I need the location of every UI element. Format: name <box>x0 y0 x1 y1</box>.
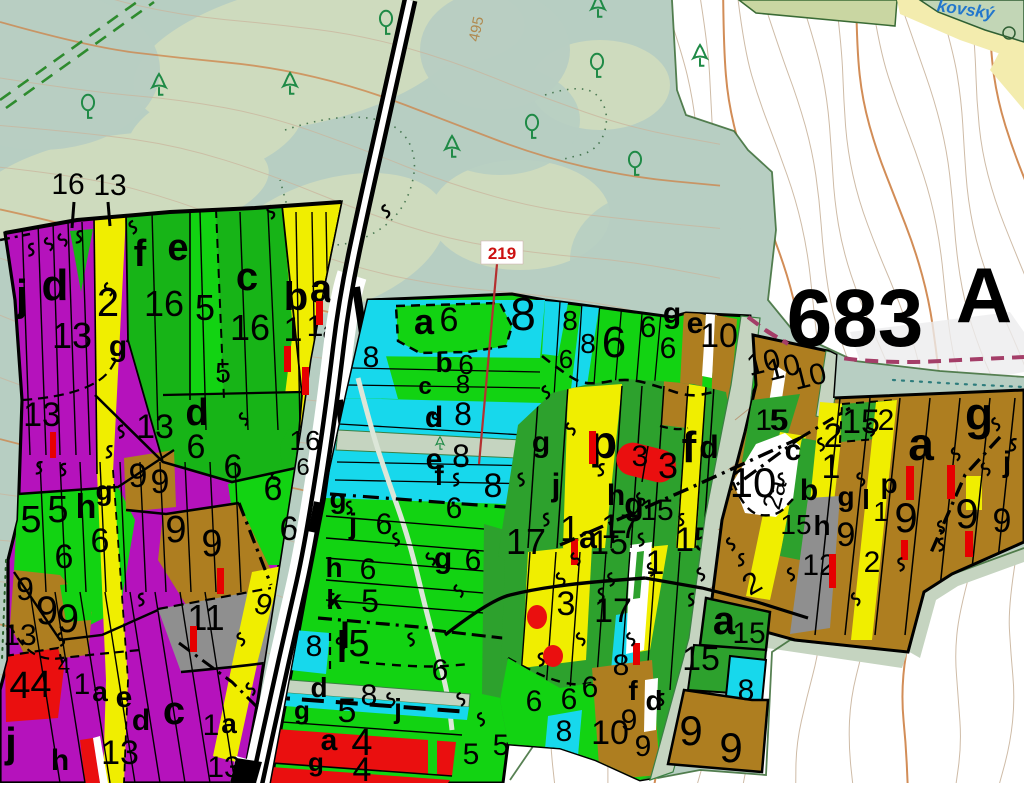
svg-text:g: g <box>532 426 550 459</box>
svg-text:c: c <box>163 689 185 733</box>
svg-text:6: 6 <box>465 544 482 577</box>
svg-text:17: 17 <box>506 521 546 562</box>
svg-text:9: 9 <box>837 516 856 554</box>
svg-text:8: 8 <box>306 630 323 663</box>
svg-text:6: 6 <box>640 311 657 344</box>
svg-text:4: 4 <box>353 751 372 783</box>
svg-text:6: 6 <box>440 301 459 339</box>
svg-text:b: b <box>800 474 818 507</box>
svg-text:16: 16 <box>230 307 270 348</box>
svg-text:1: 1 <box>646 544 665 582</box>
svg-text:a: a <box>221 708 237 739</box>
svg-text:9: 9 <box>993 502 1012 540</box>
svg-text:17: 17 <box>594 592 632 630</box>
svg-text:6: 6 <box>55 538 74 576</box>
svg-text:h: h <box>76 488 97 526</box>
svg-text:g: g <box>965 388 993 440</box>
svg-text:9: 9 <box>679 707 702 754</box>
svg-text:8: 8 <box>452 438 470 474</box>
svg-text:15: 15 <box>842 403 880 441</box>
svg-text:6: 6 <box>582 671 599 704</box>
svg-text:5: 5 <box>348 623 369 665</box>
svg-text:a: a <box>92 676 108 707</box>
svg-text:5: 5 <box>361 583 379 619</box>
svg-text:g: g <box>837 481 854 512</box>
svg-text:5: 5 <box>47 489 68 531</box>
svg-text:d: d <box>42 261 69 310</box>
svg-text:6: 6 <box>660 332 677 365</box>
svg-text:g: g <box>95 475 112 506</box>
svg-text:9: 9 <box>719 724 742 771</box>
svg-text:g: g <box>109 330 127 363</box>
svg-text:10: 10 <box>700 317 738 355</box>
svg-text:8: 8 <box>363 341 380 374</box>
svg-text:16: 16 <box>51 168 84 201</box>
svg-text:9: 9 <box>201 523 222 565</box>
svg-text:3: 3 <box>632 440 649 473</box>
svg-text:k: k <box>326 584 342 615</box>
svg-text:9: 9 <box>165 509 186 551</box>
svg-text:g: g <box>308 747 324 777</box>
svg-text:6: 6 <box>446 492 463 525</box>
svg-text:l: l <box>862 484 870 515</box>
svg-text:e: e <box>116 681 133 714</box>
svg-text:16: 16 <box>289 425 320 456</box>
svg-text:9: 9 <box>151 463 170 501</box>
svg-text:A: A <box>956 251 1012 339</box>
svg-text:6: 6 <box>526 685 543 718</box>
svg-text:e: e <box>167 227 188 269</box>
svg-text:6: 6 <box>561 683 578 716</box>
svg-text:h: h <box>813 510 830 541</box>
svg-text:8: 8 <box>484 467 503 505</box>
svg-text:g: g <box>663 297 681 330</box>
svg-text:g: g <box>329 483 346 514</box>
svg-text:5: 5 <box>215 357 231 388</box>
svg-text:9: 9 <box>129 457 148 495</box>
svg-text:8: 8 <box>613 649 630 682</box>
svg-text:4: 4 <box>9 665 30 707</box>
svg-text:f: f <box>434 460 444 491</box>
svg-text:9: 9 <box>894 494 917 541</box>
svg-text:9: 9 <box>955 490 978 537</box>
svg-text:8: 8 <box>361 679 378 712</box>
svg-text:13: 13 <box>101 734 139 772</box>
svg-text:a: a <box>908 418 934 470</box>
svg-text:6: 6 <box>224 448 243 486</box>
svg-text:683: 683 <box>787 273 924 364</box>
svg-text:6: 6 <box>602 318 626 367</box>
svg-text:1: 1 <box>74 668 91 701</box>
svg-text:d: d <box>132 704 150 737</box>
svg-text:c: c <box>418 373 431 400</box>
svg-text:h: h <box>325 552 342 583</box>
svg-text:13: 13 <box>3 619 36 652</box>
svg-text:8: 8 <box>510 288 536 340</box>
svg-text:5: 5 <box>463 738 480 771</box>
svg-text:9: 9 <box>16 571 34 607</box>
svg-text:a: a <box>414 301 435 342</box>
svg-text:13: 13 <box>23 396 61 434</box>
svg-text:2: 2 <box>878 404 895 437</box>
svg-text:4: 4 <box>58 653 70 678</box>
svg-text:8: 8 <box>556 715 573 748</box>
svg-text:219: 219 <box>488 244 516 263</box>
svg-text:6: 6 <box>432 654 449 687</box>
svg-text:3: 3 <box>658 445 678 486</box>
svg-text:2: 2 <box>97 281 119 325</box>
svg-text:j: j <box>551 467 561 503</box>
svg-text:5: 5 <box>20 499 41 541</box>
svg-text:d: d <box>310 672 327 703</box>
svg-text:15: 15 <box>640 494 673 527</box>
svg-text:2: 2 <box>864 546 881 579</box>
svg-text:6: 6 <box>296 454 309 481</box>
svg-text:f: f <box>628 675 638 706</box>
svg-text:8: 8 <box>456 369 470 399</box>
svg-text:8: 8 <box>580 328 596 359</box>
svg-text:8: 8 <box>562 305 578 336</box>
svg-text:1: 1 <box>284 311 303 349</box>
svg-text:6: 6 <box>91 522 110 560</box>
svg-text:13: 13 <box>52 315 92 356</box>
svg-text:8: 8 <box>454 396 472 432</box>
svg-text:6: 6 <box>187 428 206 466</box>
svg-text:h: h <box>51 744 69 777</box>
svg-text:15: 15 <box>732 617 765 650</box>
svg-text:b: b <box>435 347 452 378</box>
svg-text:15: 15 <box>682 640 720 678</box>
svg-text:1: 1 <box>873 496 889 527</box>
svg-text:4: 4 <box>30 664 51 706</box>
svg-text:15: 15 <box>755 404 788 437</box>
svg-text:g: g <box>294 695 310 725</box>
svg-text:6: 6 <box>360 553 377 586</box>
svg-text:13: 13 <box>136 408 174 446</box>
svg-text:13: 13 <box>93 169 126 202</box>
svg-text:6: 6 <box>264 470 283 508</box>
svg-text:f: f <box>682 423 697 472</box>
svg-text:c: c <box>236 255 258 299</box>
svg-text:16: 16 <box>144 283 184 324</box>
svg-text:9: 9 <box>635 730 652 763</box>
svg-text:j: j <box>393 693 402 724</box>
svg-text:g: g <box>434 542 452 575</box>
svg-text:j: j <box>4 719 17 766</box>
svg-text:j: j <box>15 271 28 320</box>
svg-text:9: 9 <box>36 589 58 633</box>
svg-text:f: f <box>134 233 147 275</box>
svg-text:8: 8 <box>738 674 755 707</box>
svg-text:3: 3 <box>557 585 576 623</box>
svg-text:5: 5 <box>195 287 215 328</box>
svg-text:d: d <box>645 685 662 716</box>
svg-text:6: 6 <box>376 508 393 541</box>
svg-text:15: 15 <box>780 509 811 540</box>
svg-text:1: 1 <box>203 709 220 742</box>
